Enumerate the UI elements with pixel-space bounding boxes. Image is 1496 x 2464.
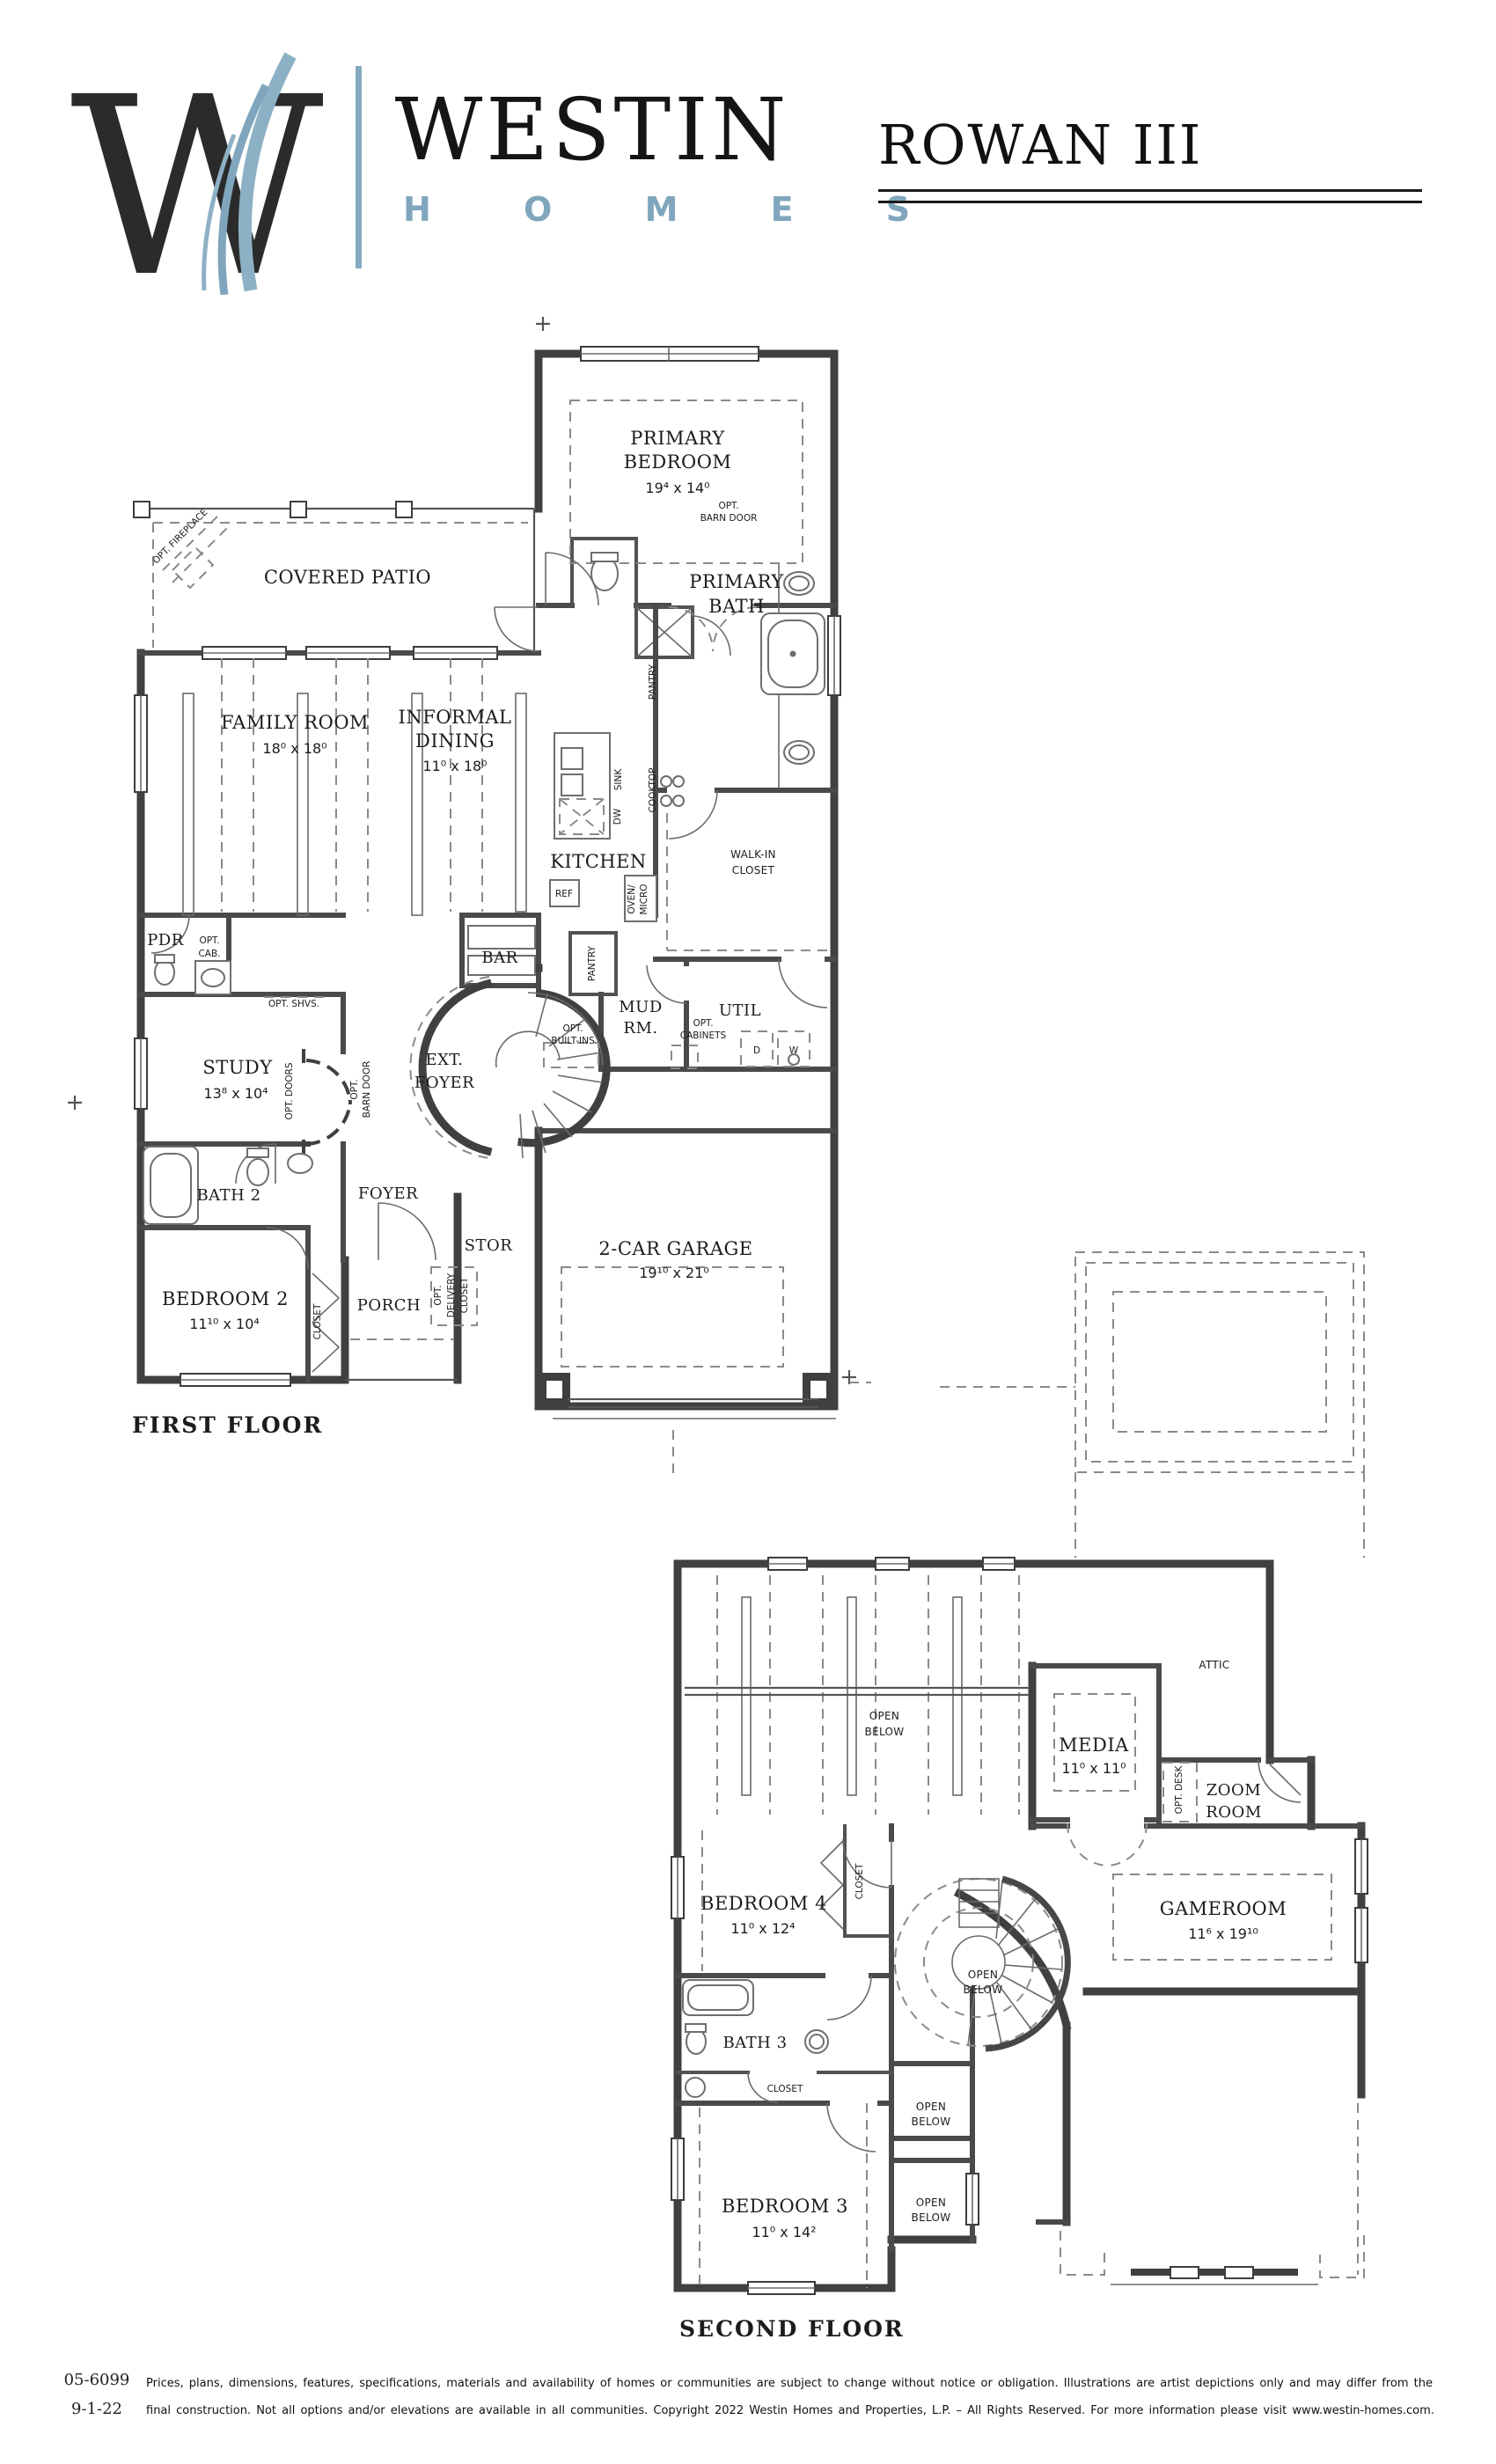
annotation-opt-fireplace: OPT. FIREPLACE — [150, 507, 209, 566]
sheet-number: 05-6099 — [48, 2365, 145, 2394]
dims-bedroom4: 11⁰ x 12⁴ — [730, 1920, 795, 1937]
annotation-opt-barn-door-2: BARN DOOR — [700, 513, 758, 524]
label-open-below-main-2: BELOW — [865, 1726, 905, 1738]
annotation-opt-barn2: OPT. — [349, 1079, 360, 1099]
floor-plan-sheet: W WESTIN H O M E S ROWAN III — [0, 0, 1496, 2464]
first-floor-label: FIRST FLOOR — [132, 1412, 323, 1438]
label-open-below-main: OPEN — [869, 1710, 899, 1722]
disclaimer: Prices, plans, dimensions, features, spe… — [146, 2370, 1444, 2424]
annotation-opt-barn2-2: BARN DOOR — [362, 1061, 372, 1118]
brand-sub: H O M E S — [385, 190, 799, 229]
annotation-opt-builtins: OPT. — [562, 1023, 583, 1034]
annotation-dw: DW — [612, 808, 623, 825]
annotation-closet4: CLOSET — [854, 1863, 865, 1899]
label-open-below-b-2: BELOW — [912, 2211, 951, 2224]
disclaimer-line-2: final construction. Not all options and/… — [146, 2397, 1444, 2424]
annotation-pantry: PANTRY — [648, 664, 658, 700]
westin-logo: W — [62, 31, 370, 295]
dims-informal-dining: 11⁰ x 18⁰ — [422, 758, 487, 774]
annotation-opt-builtins-2: BUILT-INS — [551, 1036, 595, 1046]
dims-bedroom2: 11¹⁰ x 10⁴ — [189, 1316, 260, 1332]
annotation-opt-delivery-2: DELIVERY — [446, 1272, 457, 1317]
annotation-opt-cab-2: CAB. — [198, 949, 220, 959]
annotation-micro: MICRO — [639, 884, 649, 914]
annotation-opt-delivery: OPT. — [433, 1285, 444, 1305]
sf-roof-outline — [940, 1252, 1364, 1558]
plan-title: ROWAN III — [878, 113, 1424, 177]
room-label-stor: STOR — [465, 1236, 513, 1255]
room-label-informal-dining-2: DINING — [415, 730, 495, 752]
dims-study: 13⁸ x 10⁴ — [203, 1085, 268, 1102]
sf-open-below-beams — [685, 1575, 1030, 1815]
dims-family-room: 18⁰ x 18⁰ — [262, 740, 326, 757]
sheet-number-block: 05-6099 9-1-22 — [48, 2365, 145, 2424]
sf-lower-roof — [1060, 2103, 1364, 2284]
annotation-cooktop: COOKTOP — [648, 768, 658, 813]
annotation-opt-cabinets-2: CABINETS — [680, 1030, 727, 1041]
room-label-kitchen: KITCHEN — [550, 851, 647, 872]
annotation-ref: REF — [555, 889, 573, 899]
opt-fireplace-outline — [172, 547, 213, 588]
label-open-below-stair: OPEN — [968, 1969, 998, 1981]
annotation-dryer: D — [753, 1045, 760, 1056]
annotation-opt-shvs: OPT. SHVS. — [268, 999, 319, 1009]
label-open-below-stair-2: BELOW — [964, 1984, 1003, 1996]
annotation-washer: W — [789, 1045, 799, 1056]
room-label-primary-bedroom-2: BEDROOM — [624, 451, 732, 473]
room-label-foyer: FOYER — [358, 1184, 418, 1203]
logo-divider — [356, 66, 362, 268]
room-label-family-room: FAMILY ROOM — [221, 712, 369, 733]
room-label-primary-bath-2: BATH — [708, 596, 765, 617]
annotation-opt-delivery-3: CLOSET — [459, 1277, 470, 1313]
dims-primary-bedroom: 19⁴ x 14⁰ — [645, 480, 709, 496]
disclaimer-line-1: Prices, plans, dimensions, features, spe… — [146, 2370, 1444, 2397]
label-open-below-a: OPEN — [916, 2101, 946, 2113]
annotation-opt-doors: OPT. DOORS — [284, 1062, 295, 1119]
room-label-covered-patio: COVERED PATIO — [264, 567, 431, 588]
room-label-bedroom2: BEDROOM 2 — [162, 1288, 289, 1309]
dims-bedroom3: 11⁰ x 14² — [752, 2224, 816, 2240]
label-open-below-a-2: BELOW — [912, 2116, 951, 2128]
annotation-opt-barn-door: OPT. — [718, 501, 738, 511]
room-label-study: STUDY — [202, 1057, 273, 1078]
room-label-attic: ATTIC — [1199, 1659, 1229, 1671]
room-label-mud: MUD — [619, 998, 663, 1016]
label-open-below-b: OPEN — [916, 2196, 946, 2209]
room-label-ext-foyer-2: FOYER — [414, 1074, 474, 1092]
annotation-closet: CLOSET — [312, 1303, 323, 1339]
brand-name: WESTIN — [385, 84, 799, 178]
room-label-pdr: PDR — [147, 931, 184, 950]
room-label-porch: PORCH — [357, 1296, 421, 1315]
brand-block: WESTIN H O M E S — [385, 84, 799, 229]
annotation-sink: SINK — [613, 768, 624, 791]
dims-media: 11⁰ x 11⁰ — [1061, 1760, 1126, 1777]
annotation-opt-desk: OPT. DESK — [1174, 1765, 1184, 1815]
room-label-informal-dining: INFORMAL — [399, 707, 512, 728]
room-label-bar: BAR — [481, 949, 517, 967]
annotation-oven: OVEN/ — [627, 884, 637, 914]
annotation-pantry2: PANTRY — [587, 945, 598, 981]
title-underline — [878, 189, 1422, 203]
room-label-ext-foyer: EXT. — [425, 1051, 463, 1069]
room-label-zoom-room: ZOOM — [1206, 1781, 1261, 1800]
second-floor-plan: OPEN BELOW MEDIA 11⁰ x 11⁰ ATTIC OPT. DE… — [598, 1214, 1487, 2358]
second-floor-label: SECOND FLOOR — [679, 2316, 905, 2342]
room-label-bath3: BATH 3 — [722, 2034, 787, 2052]
room-label-util: UTIL — [719, 1001, 761, 1020]
annotation-opt-cab: OPT. — [199, 935, 219, 946]
room-label-mud-2: RM. — [623, 1019, 657, 1038]
dims-gameroom: 11⁶ x 19¹⁰ — [1188, 1925, 1258, 1942]
room-label-primary-bath: PRIMARY — [689, 571, 784, 592]
room-label-primary-bedroom: PRIMARY — [630, 428, 725, 449]
room-label-walkin-2: CLOSET — [732, 864, 775, 876]
annotation-closet3: CLOSET — [767, 2084, 803, 2094]
room-label-media: MEDIA — [1059, 1734, 1129, 1756]
sheet-date: 9-1-22 — [48, 2394, 145, 2424]
room-label-gameroom: GAMEROOM — [1160, 1898, 1287, 1919]
room-label-bath2: BATH 2 — [196, 1186, 260, 1205]
room-label-zoom-room-2: ROOM — [1206, 1803, 1262, 1822]
room-label-walkin: WALK-IN — [730, 848, 776, 861]
plan-title-block: ROWAN III — [878, 113, 1424, 203]
annotation-opt-cabinets: OPT. — [693, 1018, 713, 1029]
room-label-bedroom4: BEDROOM 4 — [700, 1893, 827, 1914]
room-label-bedroom3: BEDROOM 3 — [722, 2196, 848, 2217]
logo-w-letter: W — [70, 45, 325, 295]
